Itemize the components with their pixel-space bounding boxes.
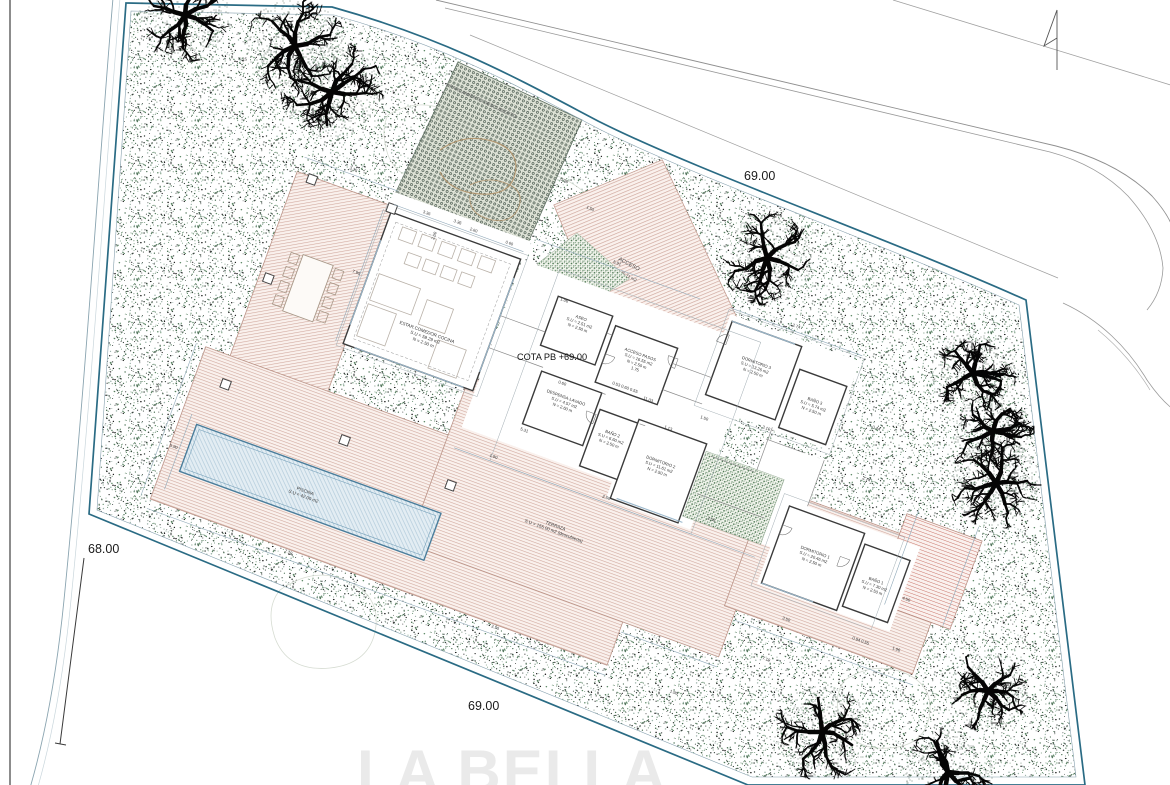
svg-text:68.00: 68.00: [88, 542, 119, 556]
svg-text:LA BELLA: LA BELLA: [357, 738, 667, 785]
svg-text:69.00: 69.00: [744, 169, 775, 183]
svg-text:5.15: 5.15: [238, 56, 248, 62]
svg-text:69.00: 69.00: [468, 699, 499, 713]
svg-text:COTA PB +69.00: COTA PB +69.00: [517, 352, 587, 362]
